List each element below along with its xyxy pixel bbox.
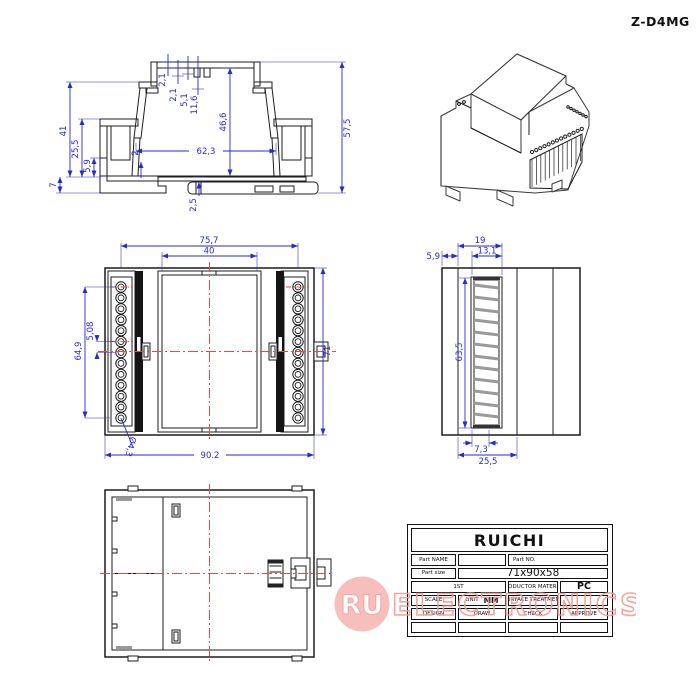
dim-label: 40 bbox=[204, 247, 215, 257]
part-size-value: 71x90x58 bbox=[458, 568, 608, 580]
first-angle-label: 1ST bbox=[411, 581, 506, 593]
section-view: 2,1 2,1 5,1 11,6 46,6 62,3 2 2,5 41 25,5… bbox=[49, 54, 353, 212]
approve-value bbox=[560, 622, 608, 634]
part-name-value bbox=[458, 554, 506, 566]
dim-label: 90.2 bbox=[201, 451, 220, 461]
terminal-holes-left bbox=[116, 282, 126, 423]
part-code: Z-D4MG bbox=[631, 14, 690, 29]
dim-label: 5,08 bbox=[86, 322, 96, 341]
drawing-page: .k{stroke:#1c1c1c;fill:none;stroke-width… bbox=[0, 0, 700, 700]
dim-label: 2 bbox=[131, 150, 141, 155]
dim-label: 71 bbox=[323, 346, 333, 357]
title-block: RUICHI Part NAME Part NO. Part size 71x9… bbox=[407, 524, 613, 637]
dim-label: 7,3 bbox=[474, 445, 488, 455]
scale-label: SCALE bbox=[411, 595, 456, 607]
draw-value bbox=[458, 622, 506, 634]
dim-label: 62,3 bbox=[197, 147, 216, 157]
productor-material-label: PRODUCTOR MATERIAL bbox=[508, 581, 558, 593]
dim-label: 75,7 bbox=[200, 236, 219, 246]
dim-label: 2,5 bbox=[189, 198, 199, 212]
dim-label: 41 bbox=[59, 126, 69, 137]
title-block-brand: RUICHI bbox=[411, 528, 608, 552]
dim-label: 19 bbox=[475, 236, 486, 246]
part-name-label: Part NAME bbox=[411, 554, 456, 566]
surface-treatment-value bbox=[560, 595, 608, 607]
dim-label: 13,1 bbox=[478, 247, 497, 257]
approve-label: APPROVE bbox=[560, 608, 608, 620]
check-label: CHECK bbox=[508, 608, 558, 620]
dim-label: 46,6 bbox=[219, 113, 229, 132]
surface-treatment-label: SURFACE TREATMENT bbox=[508, 595, 558, 607]
dim-label: 5,9 bbox=[83, 159, 93, 173]
check-value bbox=[508, 622, 558, 634]
draw-label: DRAW bbox=[458, 608, 506, 620]
side-view: 19 5,9 13,1 63,5 7,3 25,5 bbox=[426, 236, 580, 467]
design-label: DESIGN bbox=[411, 608, 456, 620]
terminal-holes-right bbox=[293, 282, 303, 423]
dim-label: 5,1 bbox=[180, 93, 190, 107]
dim-label: 57,5 bbox=[343, 119, 353, 138]
unit-value: MM bbox=[484, 596, 499, 605]
front-view: 75,7 40 90.2 64,9 5,08 71 Ø4,3 bbox=[74, 236, 336, 461]
dim-label: 2,1 bbox=[158, 73, 168, 87]
isometric-view bbox=[441, 54, 589, 206]
material-value: PC bbox=[560, 581, 608, 593]
dim-label: 25,5 bbox=[71, 140, 81, 159]
dim-label: 63,5 bbox=[455, 343, 465, 362]
dim-label: 2,1 bbox=[169, 88, 179, 102]
part-size-label: Part size bbox=[411, 568, 456, 580]
design-value bbox=[411, 622, 456, 634]
dim-label: 5,9 bbox=[426, 252, 440, 262]
unit-label: UNIT bbox=[465, 597, 478, 603]
dim-label: Ø4,3 bbox=[122, 435, 138, 457]
dim-label: 7 bbox=[49, 182, 59, 187]
dim-label: 11,6 bbox=[190, 96, 200, 115]
part-no-label: Part NO. bbox=[508, 554, 608, 566]
unit-cell: UNIT MM bbox=[458, 595, 506, 607]
bottom-view bbox=[100, 484, 333, 663]
dim-label: 64,9 bbox=[74, 342, 84, 361]
dim-label: 25,5 bbox=[479, 457, 498, 467]
